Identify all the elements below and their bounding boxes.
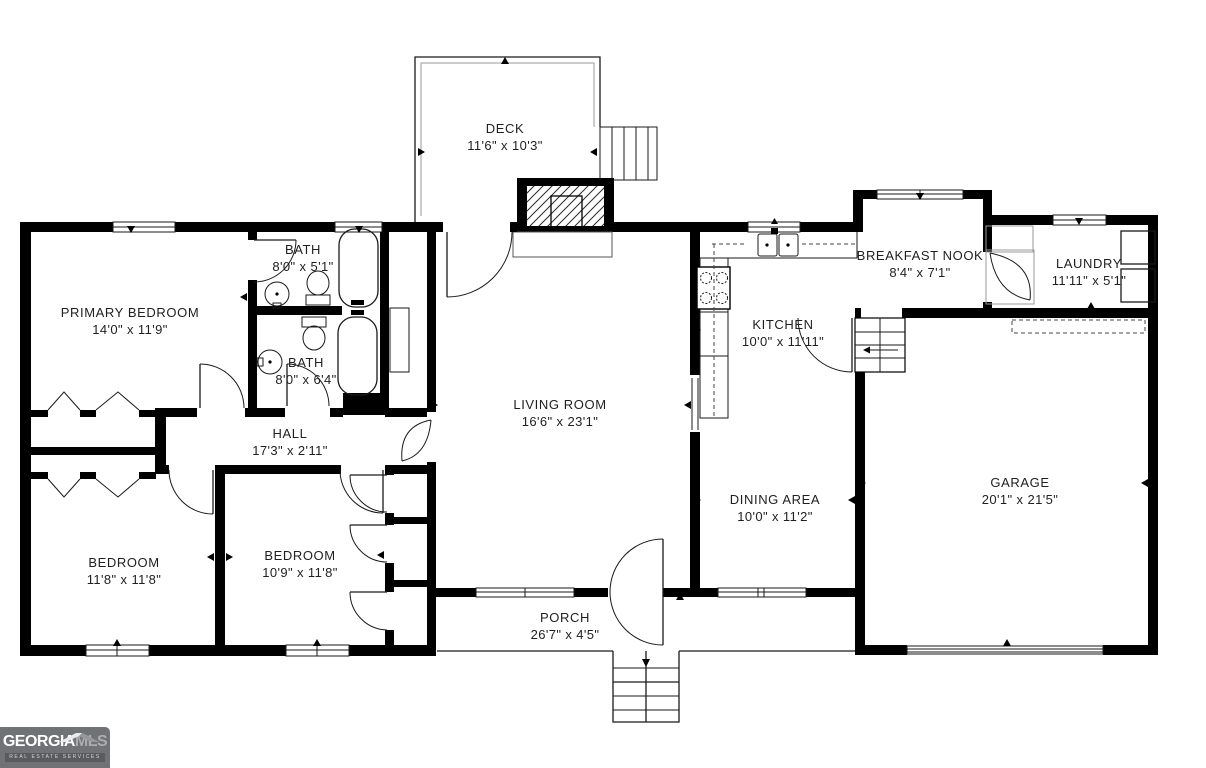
attic-access-dashed [1012,320,1145,333]
window [286,645,349,656]
bathtub-icon [339,229,378,307]
garage-door [907,646,1103,654]
tub-faucet-icon [351,310,364,315]
laundry-double-door [986,250,1034,304]
basement-stairs-icon [855,318,905,372]
room-dims-breakfast-nook: 8'4" x 7'1" [889,265,950,280]
room-label-bath-1: BATH [285,242,321,257]
dimension-ticks [23,57,1148,646]
room-label-living-room: LIVING ROOM [513,397,606,412]
toilet-icon [306,271,330,305]
room-label-garage: GARAGE [990,475,1049,490]
room-label-deck: DECK [486,121,525,136]
room-label-laundry: LAUNDRY [1056,256,1122,271]
window [86,645,149,656]
room-dims-porch: 26'7" x 4'5" [531,627,600,642]
hall-living-door [402,420,431,461]
room-label-bedroom-2: BEDROOM [264,548,335,563]
bedroom2-door [340,470,383,513]
room-dims-deck: 11'6" x 10'3" [467,138,543,153]
front-door [610,539,663,645]
room-dims-laundry: 11'11" x 5'1" [1052,273,1127,288]
room-label-hall: HALL [273,426,308,441]
porch-outline [437,651,855,722]
room-label-breakfast-nook: BREAKFAST NOOK [857,248,984,263]
logo-brand-secondary: MLS [75,733,107,750]
logo-brand: GEORGIAMLS [0,733,110,750]
logo-tagline: REAL ESTATE SERVICES [5,753,105,762]
deck-door [447,232,512,297]
room-dims-kitchen: 10'0" x 11'11" [742,334,824,349]
bathtub-icon [338,317,377,395]
hearth [513,232,612,257]
room-dims-bath-2: 8'0" x 6'4" [275,372,336,387]
closet-door [350,592,387,630]
bifold-doors-primary-closet [48,392,139,410]
bedroom1-door [169,470,213,514]
closet-door [350,475,387,512]
tub-faucet-icon [351,300,364,305]
room-dims-bedroom-1: 11'8" x 11'8" [87,572,162,587]
window [476,588,525,597]
laundry-closet [986,226,1033,252]
room-label-kitchen: KITCHEN [752,317,813,332]
sink-icon [257,350,282,374]
floor-plan: DECK 11'6" x 10'3" PRIMARY BEDROOM 14'0"… [0,0,1206,768]
room-dims-bedroom-2: 10'9" x 11'8" [262,565,338,580]
room-label-primary-bedroom: PRIMARY BEDROOM [61,305,200,320]
toilet-icon [302,317,326,350]
georgia-mls-logo: GEORGIAMLS REAL ESTATE SERVICES [0,727,110,768]
built-in-shelf [390,308,409,372]
bifold-doors-bedroom1-closet [48,479,139,497]
room-dims-dining-area: 10'0" x 11'2" [737,509,813,524]
roof-icon [59,732,99,742]
room-dims-primary-bedroom: 14'0" x 11'9" [92,322,168,337]
floor-plan-page: DECK 11'6" x 10'3" PRIMARY BEDROOM 14'0"… [0,0,1206,768]
deck-stairs-icon [612,127,648,180]
doors [48,232,1034,645]
room-label-bedroom-1: BEDROOM [88,555,159,570]
window [718,588,806,597]
cased-opening [692,378,698,430]
room-label-bath-2: BATH [288,355,324,370]
room-label-dining-area: DINING AREA [730,492,820,507]
room-dims-garage: 20'1" x 21'5" [982,492,1059,507]
fireplace-icon [513,178,614,257]
primary-bedroom-door [200,364,244,408]
sink-icon [265,282,289,308]
room-label-porch: PORCH [540,610,590,625]
room-dims-bath-1: 8'0" x 5'1" [272,259,333,274]
room-dims-hall: 17'3" x 2'11" [252,443,328,458]
window [113,222,175,232]
window [525,588,574,597]
room-dims-living-room: 16'6" x 23'1" [522,414,599,429]
